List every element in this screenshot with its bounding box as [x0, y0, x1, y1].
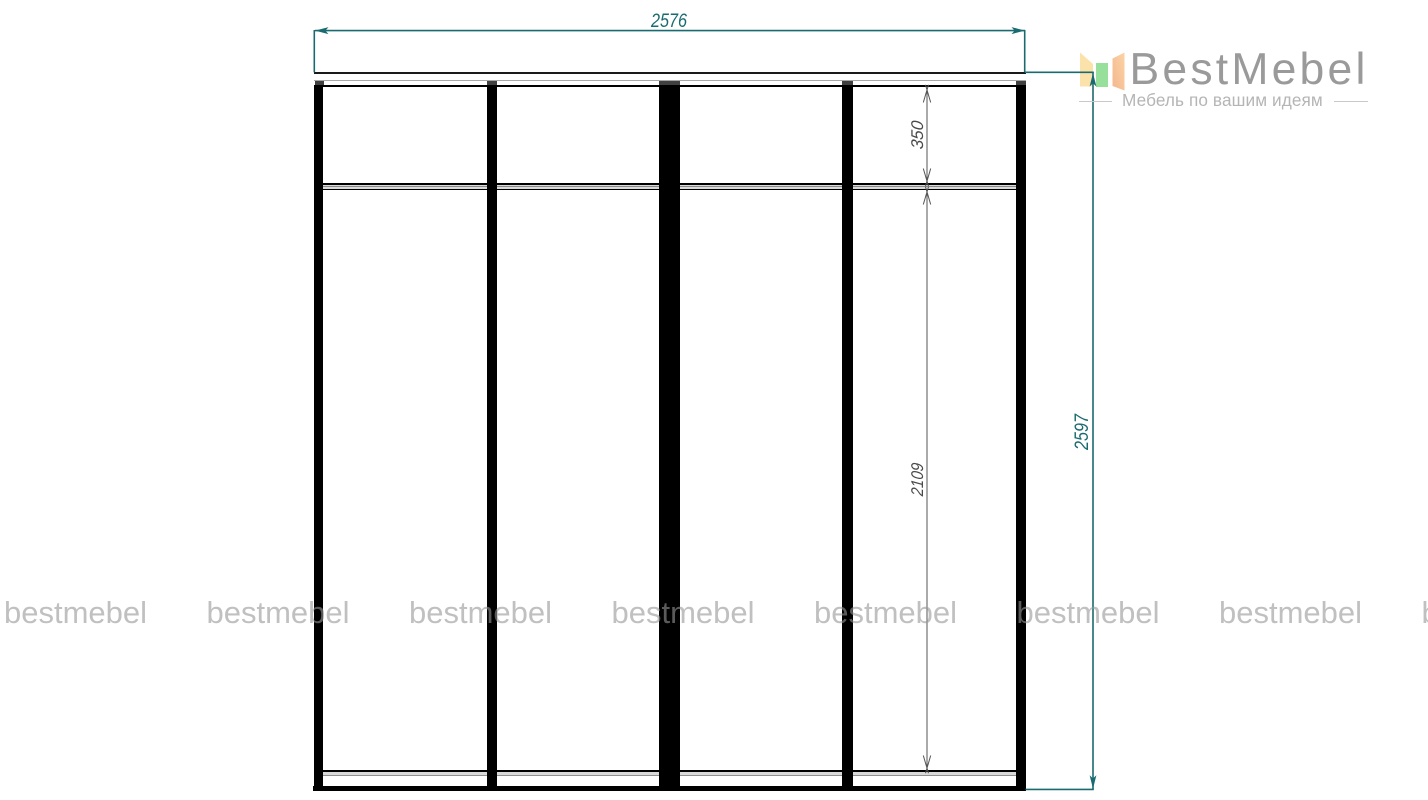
svg-text:2576: 2576	[650, 10, 687, 32]
svg-text:2109: 2109	[908, 461, 927, 497]
svg-text:2597: 2597	[1071, 413, 1093, 451]
svg-text:350: 350	[908, 119, 927, 150]
